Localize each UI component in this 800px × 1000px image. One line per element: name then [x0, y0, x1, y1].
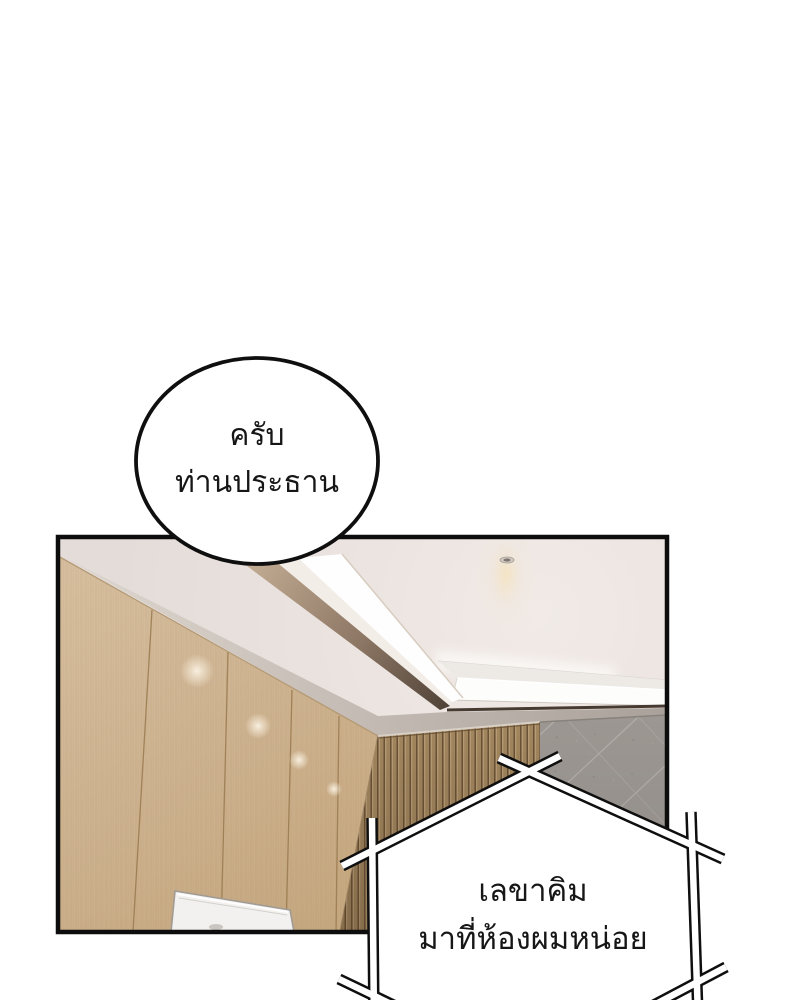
speech-line: ครับ — [117, 412, 397, 459]
speech-line: มาที่ห้องผมหน่อย — [368, 915, 698, 963]
speech-line: เลขาคิม — [368, 867, 698, 915]
chairman-reply-text: ครับ ท่านประธาน — [117, 412, 397, 506]
speech-line: ท่านประธาน — [117, 459, 397, 506]
intercom-call-text: เลขาคิม มาที่ห้องผมหน่อย — [368, 867, 698, 963]
comic-page: ครับ ท่านประธาน เลขาคิม มาที่ห้องผมหน่อย — [0, 0, 800, 1000]
recessed-light — [476, 526, 536, 630]
